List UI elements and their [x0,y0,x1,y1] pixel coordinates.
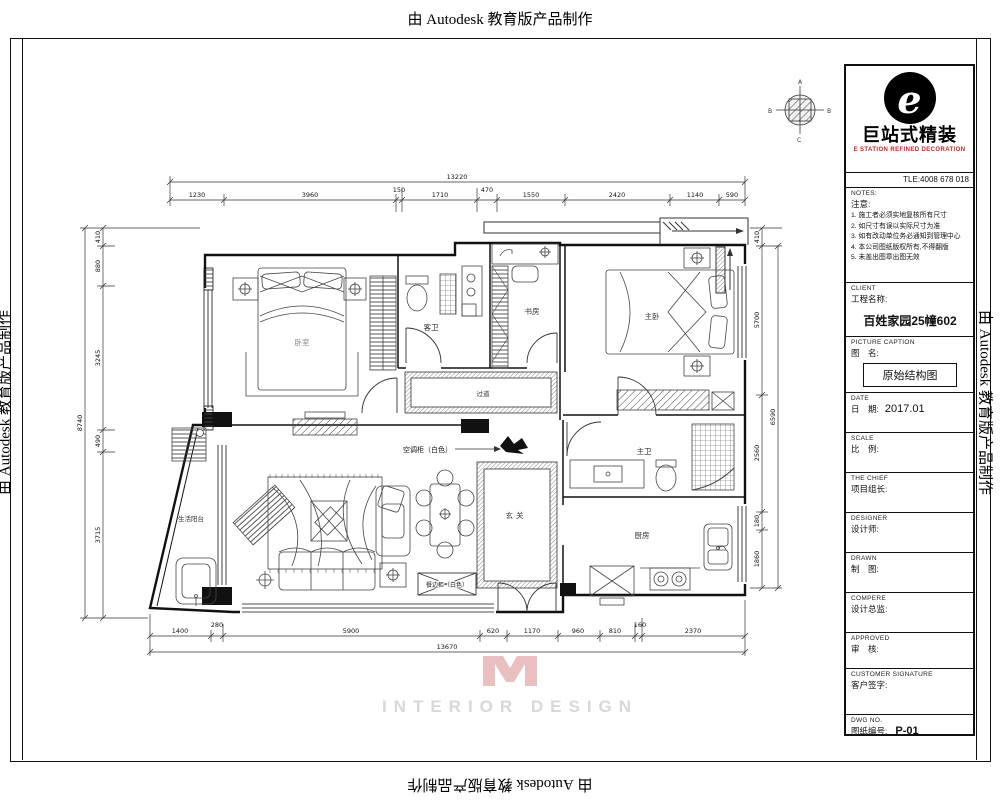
client-label-en: CLIENT [851,285,969,293]
date-label-en: DATE [851,395,969,403]
chief-section: THE CHIEF 项目组长: [846,472,973,512]
title-block: e 巨站式精装 E STATION REFINED DECORATION TLE… [844,64,975,736]
dim-top-seg: 1230 [189,191,206,199]
brand-name-cn: 巨站式精装 [846,126,973,146]
notes-label-en: NOTES: [851,190,969,198]
dim-top-seg: 1550 [523,191,540,199]
signature-label-cn: 客户签字: [851,679,969,692]
dim-top-seg: 150 [393,186,405,194]
dim-top-total: 13220 [447,173,468,181]
study-furniture [492,244,558,368]
brand-name-en: E STATION REFINED DECORATION [846,146,973,154]
note-item: 5. 未盖出图章出图无效 [851,253,969,264]
approved-label-cn: 审 核: [851,643,879,656]
approved-section: APPROVED 审 核: [846,632,973,668]
date-section: DATE 日 期: 2017.01 [846,392,973,432]
caption-section: PICTURE CAPTION 图 名: 原始结构图 [846,336,973,392]
scale-label-en: SCALE [851,435,969,443]
ac-unit-callout [455,436,528,454]
dim-top-seg: 3960 [302,191,319,199]
compere-label-cn: 设计总监: [851,603,887,616]
caption-label-en: PICTURE CAPTION [851,339,969,347]
drawn-label-en: DRAWN [851,555,969,563]
dim-bottom-total: 13670 [437,643,458,651]
compass-label-right: B [827,108,831,115]
compass-label-bottom: C [797,137,801,144]
dim-bottom-seg: 620 [487,627,499,635]
kitchen-fixtures [590,524,732,605]
dim-top-seg: 2420 [609,191,626,199]
company-logo-icon: e [884,72,936,124]
dim-bottom-seg: 5900 [343,627,360,635]
room-label-kitchen: 厨房 [635,530,650,540]
caption-label-cn: 图 名: [851,347,969,360]
dim-top-seg: 1140 [687,191,704,199]
dining-furniture [416,470,474,558]
dim-bottom-seg: 1170 [524,627,541,635]
scale-section: SCALE 比 例: [846,432,973,472]
dim-right-seg: 410 [753,231,761,243]
designer-section: DESIGNER 设计师: [846,512,973,552]
dwg-number: P-01 [895,725,918,737]
dim-chain-left: 8740 410 880 3245 490 3715 [76,225,200,621]
master-bath-fixtures [570,424,734,491]
room-label-balcony: 生活阳台 [178,514,204,523]
dim-bottom-seg: 2370 [685,627,702,635]
living-furniture [233,412,410,590]
compass-label-left: B [768,108,772,115]
guest-bath-fixtures [406,266,482,316]
note-item: 1. 施工者必须实地复核所有尺寸 [851,211,969,222]
date-value: 2017.01 [885,403,925,415]
dim-top-seg: 1710 [432,191,449,199]
drawn-label-cn: 制 图: [851,563,879,576]
date-label-cn: 日 期: [851,403,879,416]
room-label-study: 书房 [525,306,540,316]
windows [203,264,747,614]
bedroom-furniture [233,268,396,396]
room-label-entry: 玄关 [506,510,527,520]
ac-unit-label: 空调柜（白色） [403,445,452,454]
north-compass: A B B C [768,79,831,144]
dwg-label-en: DWG NO. [851,717,969,725]
compass-label-top: A [798,79,803,86]
signature-label-en: CUSTOMER SIGNATURE [851,671,969,679]
dim-bottom-seg: 280 [211,621,223,629]
note-item: 2. 如尺寸有误以实际尺寸为准 [851,222,969,233]
compere-label-en: COMPERE [851,595,969,603]
room-label-bedroom: 卧室 [295,337,310,347]
dim-chain-right: 6590 410 5700 2560 180 1860 [750,225,782,591]
drawing-title: 原始结构图 [863,363,957,387]
dim-left-seg: 410 [94,231,102,243]
dim-right-seg: 180 [753,515,761,527]
note-item: 4. 本公司图纸版权所有,不得翻版 [851,243,969,254]
approved-label-en: APPROVED [851,635,969,643]
dim-bottom-seg: 960 [572,627,584,635]
room-labels: 卧室 客卫 书房 主卧 过道 玄关 主卫 厨房 生活阳台 [178,306,660,540]
room-label-corridor: 过道 [477,389,491,398]
dim-top-seg: 470 [481,186,493,194]
dim-bottom-seg: 1400 [172,627,189,635]
dim-top-seg: 590 [726,191,738,199]
entry-zone [477,462,557,588]
dim-left-seg: 880 [94,260,102,272]
client-value: 百姓家园25幢602 [851,312,969,329]
chief-label-cn: 项目组长: [851,483,887,496]
dim-right-total: 6590 [769,409,777,426]
room-label-master: 主卧 [645,311,660,321]
notes-section: NOTES: 注意: 1. 施工者必须实地复核所有尺寸 2. 如尺寸有误以实际尺… [846,187,973,282]
dwg-section: DWG NO. 图纸编号: P-01 [846,714,973,738]
drawing-sheet: 由 Autodesk 教育版产品制作 由 Autodesk 教育版产品制作 由 … [0,0,1000,800]
chief-label-en: THE CHIEF [851,475,969,483]
designer-label-cn: 设计师: [851,523,879,536]
drawn-section: DRAWN 制 图: [846,552,973,592]
dim-left-seg: 3715 [94,527,102,544]
client-section: CLIENT 工程名称: 百姓家园25幢602 [846,282,973,336]
note-item: 3. 如有改动单位务必通知到管理中心 [851,232,969,243]
sideboard-label: 餐边柜（白色） [426,581,468,589]
dim-left-total: 8740 [76,415,84,432]
dim-bottom-seg: 160 [634,621,646,629]
dim-right-seg: 2560 [753,445,761,462]
logo-letter: e [884,74,936,126]
designer-label-en: DESIGNER [851,515,969,523]
room-label-guest-bath: 客卫 [424,322,439,332]
scale-label-cn: 比 例: [851,443,879,456]
brand-telephone: TLE:4008 678 018 [846,172,973,187]
dim-right-seg: 1860 [753,551,761,568]
dim-left-seg: 490 [94,435,102,447]
master-furniture [606,248,734,410]
dim-bottom-seg: 810 [609,627,621,635]
dim-left-seg: 3245 [94,350,102,367]
dim-chain-top: 13220 1230 3960 150 1710 470 1550 2420 1… [167,173,748,212]
company-logo-section: e 巨站式精装 E STATION REFINED DECORATION [846,66,973,172]
dwg-label-cn: 图纸编号: [851,725,887,738]
signature-section: CUSTOMER SIGNATURE 客户签字: [846,668,973,714]
room-label-master-bath: 主卫 [637,446,652,456]
compere-section: COMPERE 设计总监: [846,592,973,632]
dim-right-seg: 5700 [753,312,761,329]
client-label-cn: 工程名称: [851,293,969,306]
notes-label-cn: 注意: [851,198,969,211]
